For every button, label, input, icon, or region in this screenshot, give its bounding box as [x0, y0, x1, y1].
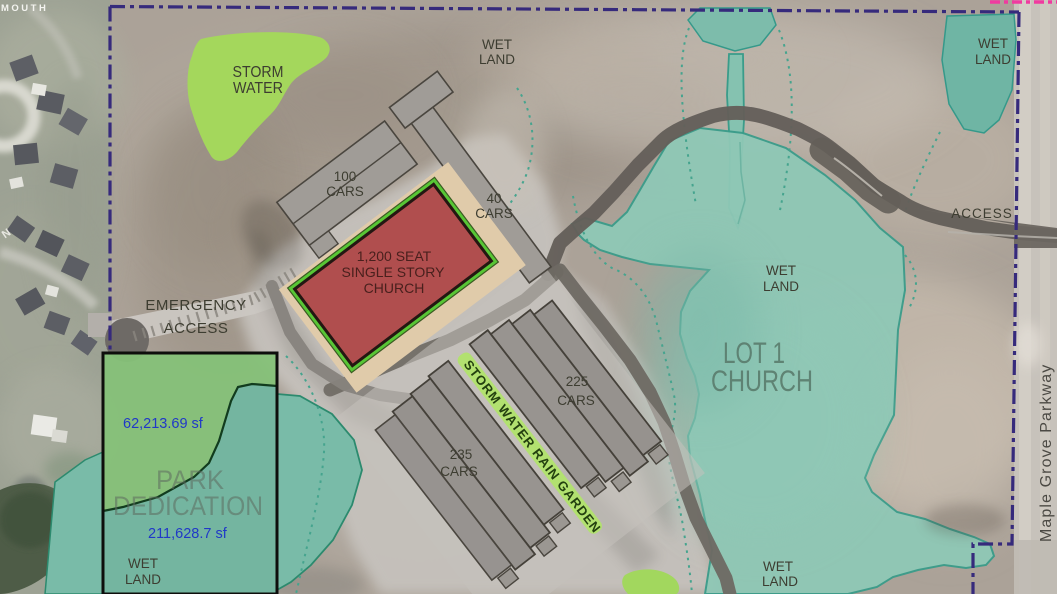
svg-text:LAND: LAND: [763, 279, 799, 294]
svg-text:LAND: LAND: [762, 574, 798, 589]
svg-text:Maple Grove Parkway: Maple Grove Parkway: [1038, 364, 1055, 542]
svg-text:CARS: CARS: [475, 206, 513, 221]
svg-text:235: 235: [450, 447, 473, 462]
svg-text:SINGLE STORY: SINGLE STORY: [342, 264, 446, 280]
svg-text:WATER: WATER: [233, 80, 283, 97]
svg-text:62,213.69 sf: 62,213.69 sf: [123, 416, 204, 432]
svg-text:CARS: CARS: [557, 393, 595, 408]
svg-text:ACCESS: ACCESS: [164, 320, 229, 337]
svg-text:WET: WET: [978, 36, 1008, 51]
svg-text:ACCESS: ACCESS: [951, 206, 1013, 221]
svg-text:DEDICATION: DEDICATION: [113, 491, 263, 521]
svg-text:LAND: LAND: [975, 52, 1011, 67]
svg-text:WET: WET: [766, 263, 796, 278]
svg-text:WET: WET: [128, 556, 158, 571]
svg-text:1,200 SEAT: 1,200 SEAT: [357, 248, 432, 264]
svg-text:MOUTH: MOUTH: [1, 3, 48, 14]
svg-text:225: 225: [566, 374, 589, 389]
svg-text:WET: WET: [482, 37, 512, 52]
svg-text:CARS: CARS: [440, 464, 478, 479]
svg-text:CHURCH: CHURCH: [364, 280, 425, 296]
svg-text:CARS: CARS: [326, 184, 364, 199]
svg-text:EMERGENCY: EMERGENCY: [145, 297, 246, 314]
svg-text:100: 100: [334, 169, 357, 184]
svg-text:LAND: LAND: [125, 572, 161, 587]
svg-text:40: 40: [486, 191, 501, 206]
svg-text:STORM: STORM: [233, 64, 284, 81]
svg-text:211,628.7 sf: 211,628.7 sf: [148, 526, 228, 542]
svg-text:CHURCH: CHURCH: [711, 365, 813, 398]
svg-text:WET: WET: [763, 559, 793, 574]
svg-text:LAND: LAND: [479, 52, 515, 67]
